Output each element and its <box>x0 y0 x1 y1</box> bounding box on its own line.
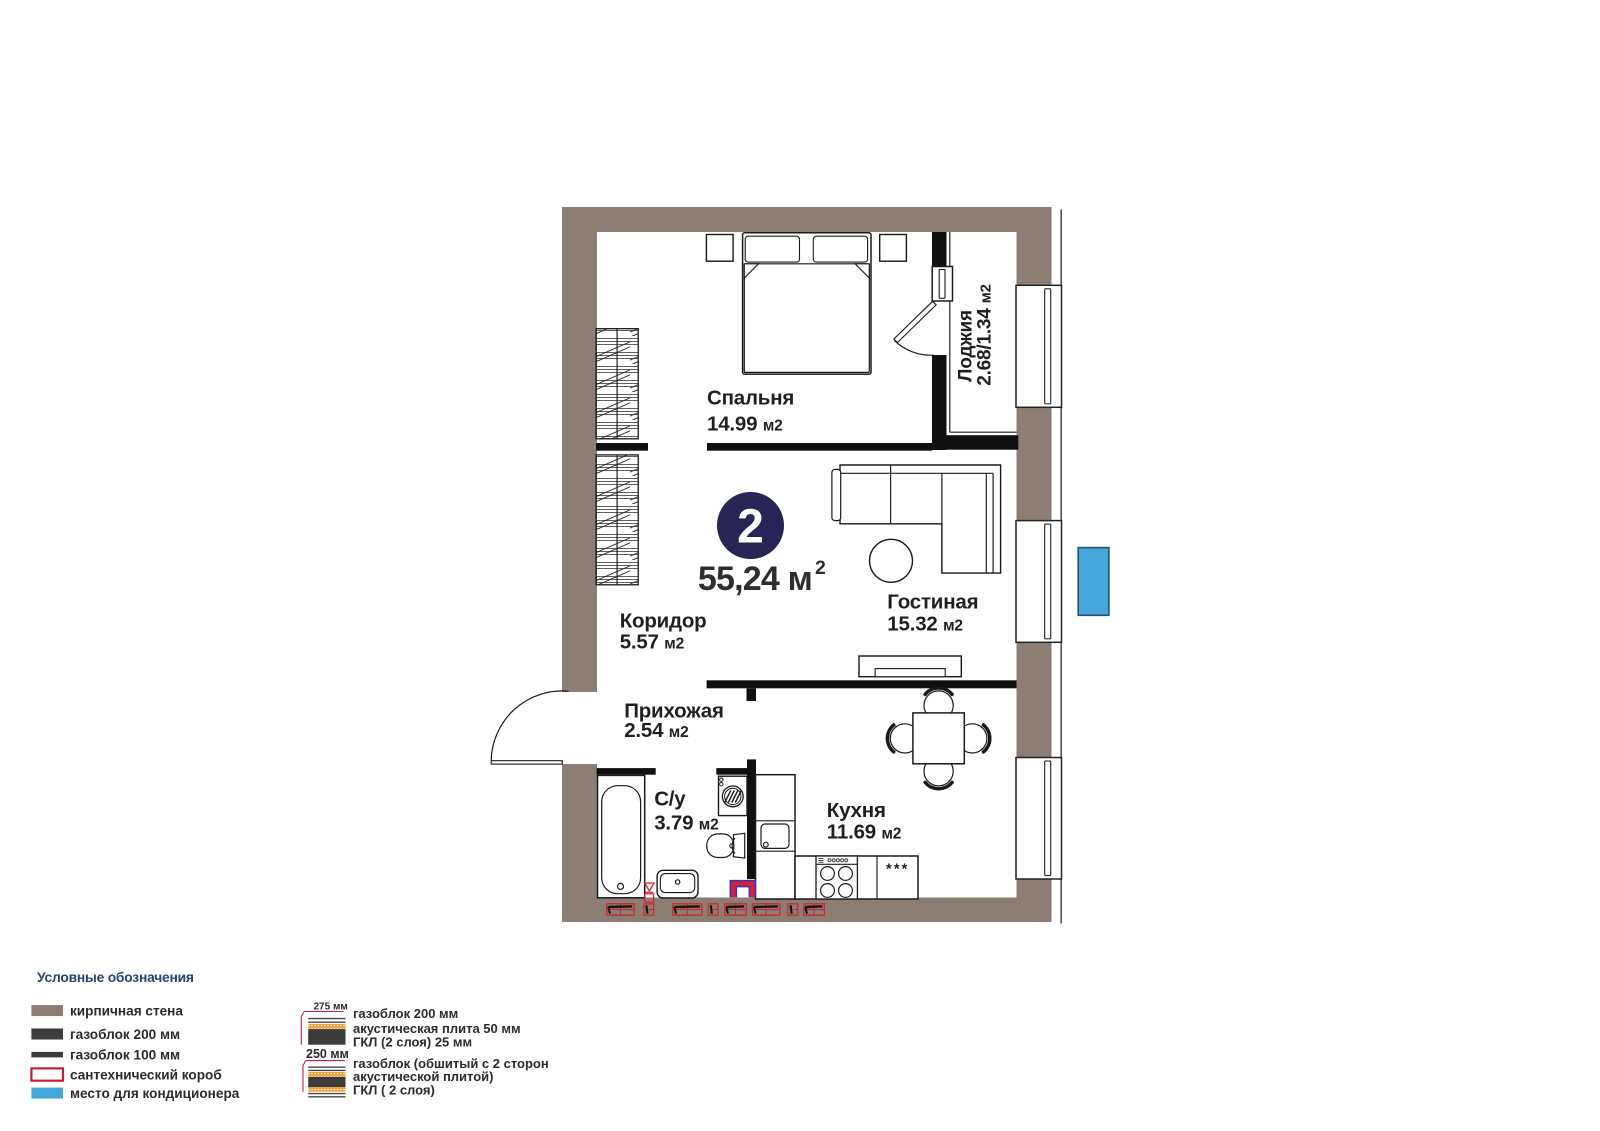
svg-text:ГКЛ ( 2 слоя): ГКЛ ( 2 слоя) <box>353 1082 435 1097</box>
svg-text:Лоджия: Лоджия <box>956 310 977 382</box>
svg-text:2.54м2: 2.54м2 <box>624 719 688 742</box>
svg-text:кирпичная стена: кирпичная стена <box>70 1004 183 1019</box>
svg-text:Кухня: Кухня <box>827 799 886 822</box>
svg-text:Условные обозначения: Условные обозначения <box>37 970 194 985</box>
svg-text:газоблок 100 мм: газоблок 100 мм <box>70 1048 180 1063</box>
svg-text:14.99м2: 14.99м2 <box>707 413 783 436</box>
svg-text:сантехнический короб: сантехнический короб <box>70 1068 222 1083</box>
svg-text:55,24 м: 55,24 м <box>698 560 812 598</box>
svg-text:Спальня: Спальня <box>707 387 794 410</box>
svg-text:место для кондиционера: место для кондиционера <box>70 1086 240 1101</box>
svg-text:11.69м2: 11.69м2 <box>827 821 901 844</box>
svg-text:275 мм: 275 мм <box>314 1002 348 1013</box>
svg-text:3.79м2: 3.79м2 <box>654 812 718 835</box>
svg-text:2: 2 <box>815 557 826 579</box>
svg-text:15.32м2: 15.32м2 <box>887 613 963 636</box>
svg-text:газоблок 200 мм: газоблок 200 мм <box>353 1006 458 1021</box>
svg-text:2.68/1.34 м2: 2.68/1.34 м2 <box>975 284 996 386</box>
svg-text:ГКЛ (2 слоя) 25 мм: ГКЛ (2 слоя) 25 мм <box>353 1034 472 1049</box>
svg-text:С/у: С/у <box>654 788 686 811</box>
svg-text:5.57м2: 5.57м2 <box>620 630 684 653</box>
svg-text:Гостиная: Гостиная <box>887 591 978 614</box>
svg-text:2: 2 <box>737 501 764 554</box>
svg-text:Коридор: Коридор <box>620 610 707 633</box>
svg-text:***: *** <box>886 862 910 878</box>
svg-text:250 мм: 250 мм <box>306 1047 349 1061</box>
svg-text:газоблок 200 мм: газоблок 200 мм <box>70 1027 180 1042</box>
